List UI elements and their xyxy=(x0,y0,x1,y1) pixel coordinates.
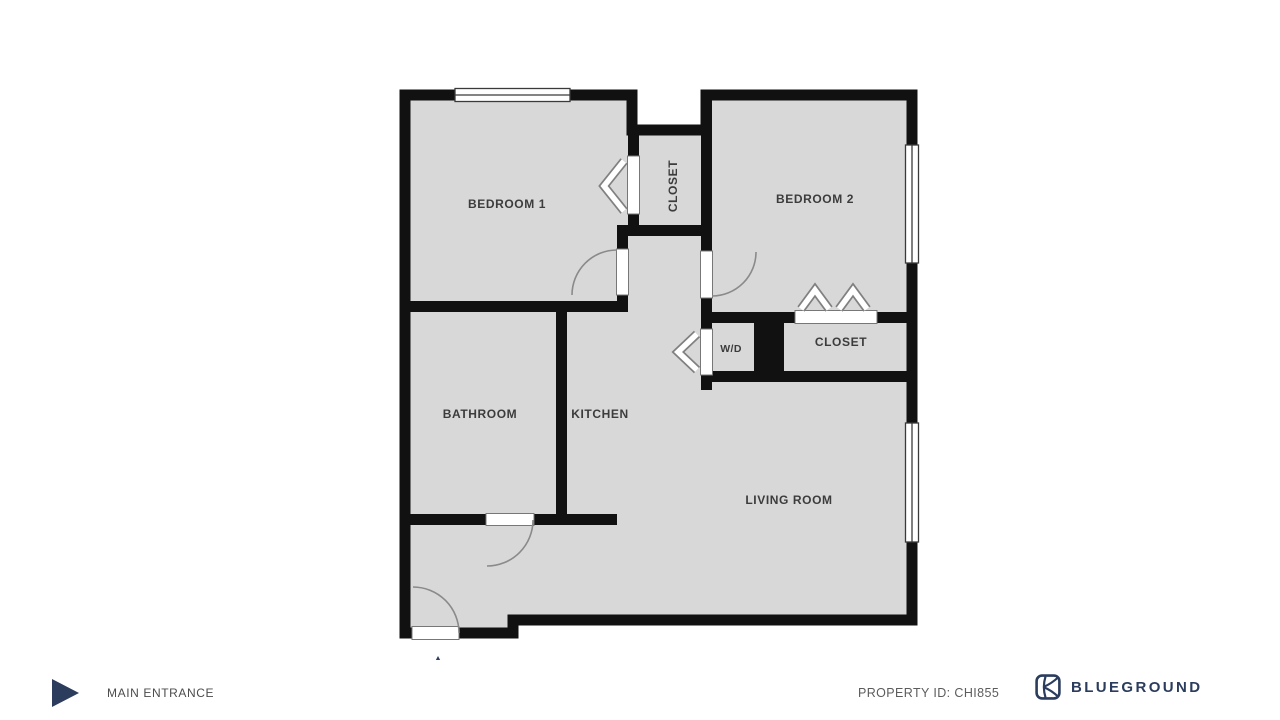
label-closet2: CLOSET xyxy=(815,335,867,349)
brand-logo: BLUEGROUND xyxy=(1035,674,1203,700)
main-entrance-icon xyxy=(52,679,79,707)
label-bedroom1: BEDROOM 1 xyxy=(468,197,546,211)
window-living-room xyxy=(906,423,919,542)
label-kitchen: KITCHEN xyxy=(571,407,629,421)
entrance-marker-icon xyxy=(424,656,452,660)
label-living-room: LIVING ROOM xyxy=(745,493,832,507)
blueground-logo-icon xyxy=(1035,674,1061,700)
main-entrance-label: MAIN ENTRANCE xyxy=(107,686,214,700)
floor-plan: BEDROOM 1 CLOSET BEDROOM 2 BATHROOM KITC… xyxy=(0,0,1280,660)
brand-name: BLUEGROUND xyxy=(1071,679,1203,696)
property-id: PROPERTY ID: CHI855 xyxy=(858,686,999,700)
floor-plan-page: BEDROOM 1 CLOSET BEDROOM 2 BATHROOM KITC… xyxy=(0,0,1280,720)
window-bedroom1 xyxy=(455,89,570,102)
window-bedroom2 xyxy=(906,145,919,263)
label-closet-top: CLOSET xyxy=(666,160,680,212)
label-wd: W/D xyxy=(720,343,742,355)
label-bedroom2: BEDROOM 2 xyxy=(776,192,854,206)
floor-outline xyxy=(405,95,912,633)
label-bathroom: BATHROOM xyxy=(443,407,518,421)
